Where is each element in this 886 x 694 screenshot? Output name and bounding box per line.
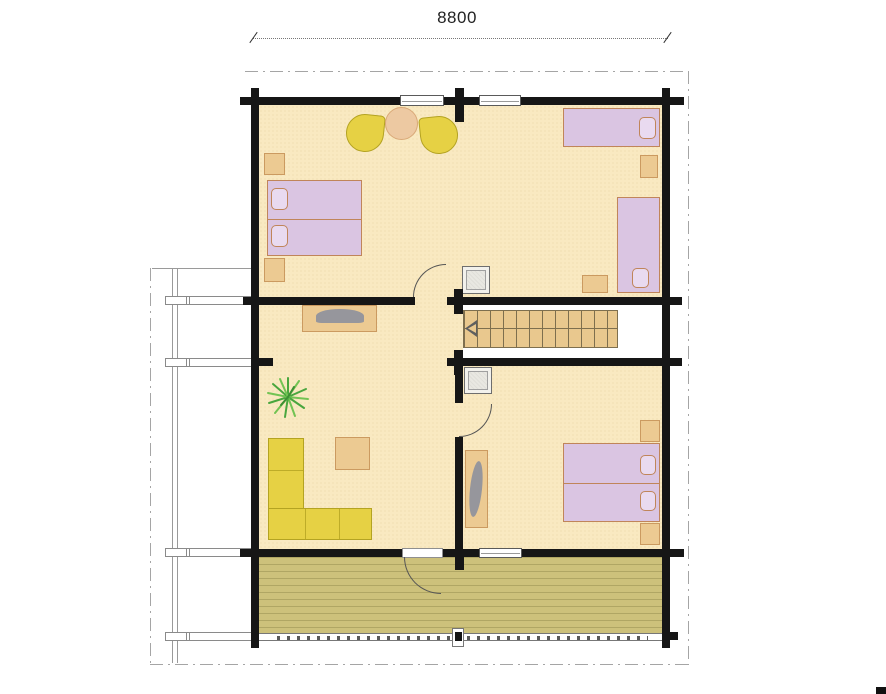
double-bed [563, 443, 660, 522]
nightstand [264, 258, 285, 282]
pergola-beam [165, 296, 253, 305]
pillow [271, 225, 288, 247]
staircase [463, 310, 618, 348]
nightstand [582, 275, 608, 293]
sofa-cushion-line [269, 470, 303, 471]
window [479, 548, 522, 558]
pillow [639, 117, 656, 139]
page-corner-mark [876, 687, 886, 694]
tv-icon [316, 309, 364, 323]
roof-overhang-top [245, 71, 688, 72]
pillow [640, 455, 656, 475]
stair-center-line [463, 328, 618, 329]
beam-joint [186, 633, 190, 640]
roof-overhang-right [688, 71, 689, 665]
wardrobe-row [464, 367, 580, 394]
railing-post-core [455, 632, 462, 641]
window-glass-line [481, 101, 519, 102]
nightstand [264, 153, 285, 175]
window-glass-line [402, 101, 442, 102]
interior-wall-1-right [447, 297, 682, 305]
nightstand [640, 523, 660, 545]
wardrobe-unit [462, 266, 490, 294]
wardrobe-door [468, 371, 488, 390]
beam-joint [186, 549, 190, 556]
plant-icon [263, 372, 313, 422]
single-bed [563, 108, 660, 147]
dresser [465, 450, 488, 528]
sofa-cushion-line [339, 509, 340, 539]
bed-split-line [564, 483, 659, 484]
pergola-top-line [152, 268, 252, 269]
corner-sofa-bottom-part [268, 508, 372, 540]
log-post-bottom [455, 549, 464, 570]
pillow [632, 268, 649, 288]
wardrobe-unit [464, 367, 492, 394]
interior-wall-2 [447, 358, 682, 366]
dimension-label: 8800 [417, 8, 497, 28]
window [400, 95, 444, 106]
single-bed [617, 197, 660, 293]
bed-split-line [268, 219, 361, 220]
window [479, 95, 521, 106]
sofa-cushion-line [305, 509, 306, 539]
pillow [640, 491, 656, 511]
interior-wall-3-upper [455, 366, 463, 403]
double-bed [267, 180, 362, 256]
tv-table [302, 305, 377, 332]
interior-wall-3-lower [455, 437, 463, 549]
interior-wall-1-left [243, 297, 415, 305]
plant-silhouette-icon [467, 461, 485, 518]
exterior-wall-left [251, 88, 259, 648]
exterior-wall-right [662, 88, 670, 648]
dimension-line [253, 38, 668, 39]
log-post-top [455, 88, 464, 122]
roof-overhang-left [150, 268, 151, 668]
deck-corner-post-right [662, 633, 670, 648]
log-end-cap [454, 289, 463, 314]
beam-joint [186, 359, 190, 366]
wall-stub-left [251, 358, 273, 366]
nightstand [640, 420, 660, 442]
round-table [385, 107, 418, 140]
pergola-edge-line [172, 269, 178, 663]
pillow [271, 188, 288, 210]
nightstand [640, 155, 658, 178]
wardrobe-door [466, 270, 486, 290]
deck-corner-post-left [251, 633, 259, 648]
window-glass-line [481, 553, 520, 554]
floor-plan-canvas: 8800 [0, 0, 886, 694]
coffee-table [335, 437, 370, 470]
roof-overhang-bottom [150, 664, 689, 665]
wardrobe-row [462, 266, 578, 294]
pergola-beam [165, 632, 253, 641]
pergola-beam [165, 358, 253, 367]
beam-joint [186, 297, 190, 304]
